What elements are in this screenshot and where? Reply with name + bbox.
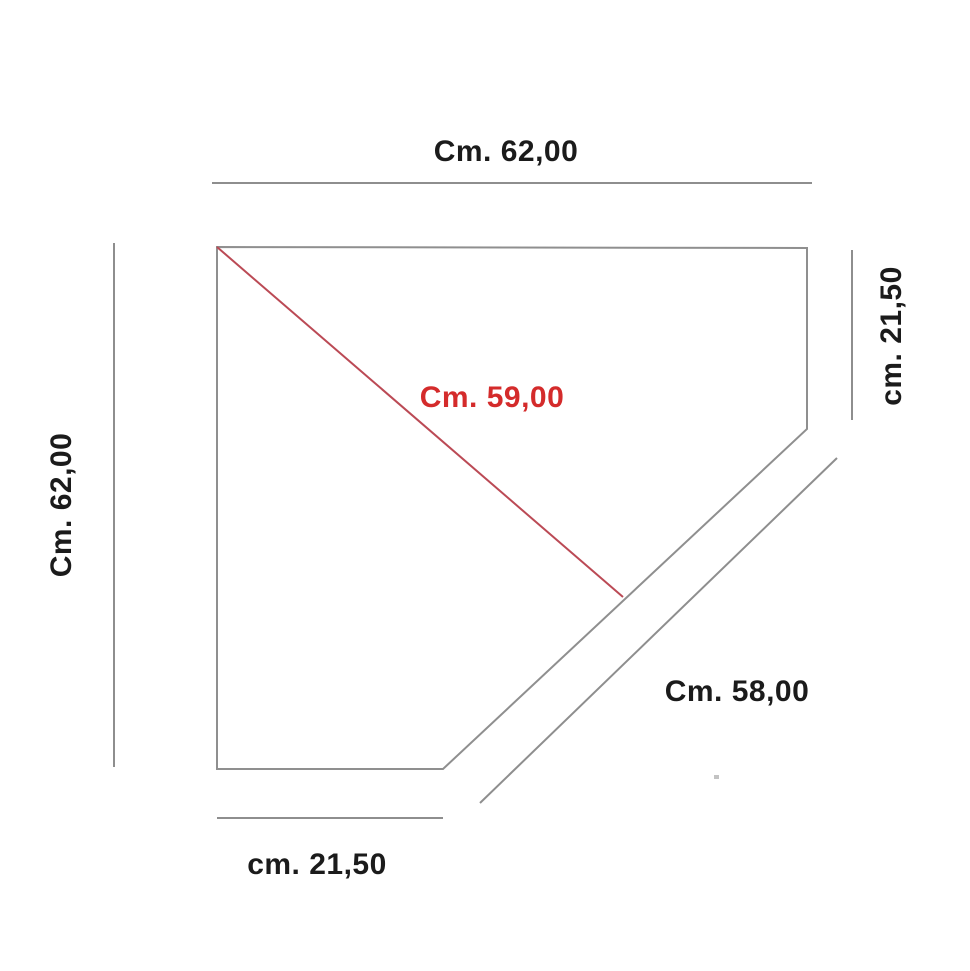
diagonal-cut-label: Cm. 58,00 <box>665 675 810 709</box>
diagonal-dimension-line <box>480 458 837 803</box>
bottom-side-label: cm. 21,50 <box>247 848 387 882</box>
left-height-label: Cm. 62,00 <box>45 433 79 578</box>
dimension-diagram: Cm. 62,00 Cm. 62,00 cm. 21,50 cm. 21,50 … <box>0 0 970 971</box>
inner-diagonal-line <box>217 247 623 597</box>
right-side-label: cm. 21,50 <box>875 266 909 406</box>
stray-dot <box>714 775 719 779</box>
inner-diagonal-label: Cm. 59,00 <box>420 381 565 415</box>
top-width-label: Cm. 62,00 <box>434 135 579 169</box>
